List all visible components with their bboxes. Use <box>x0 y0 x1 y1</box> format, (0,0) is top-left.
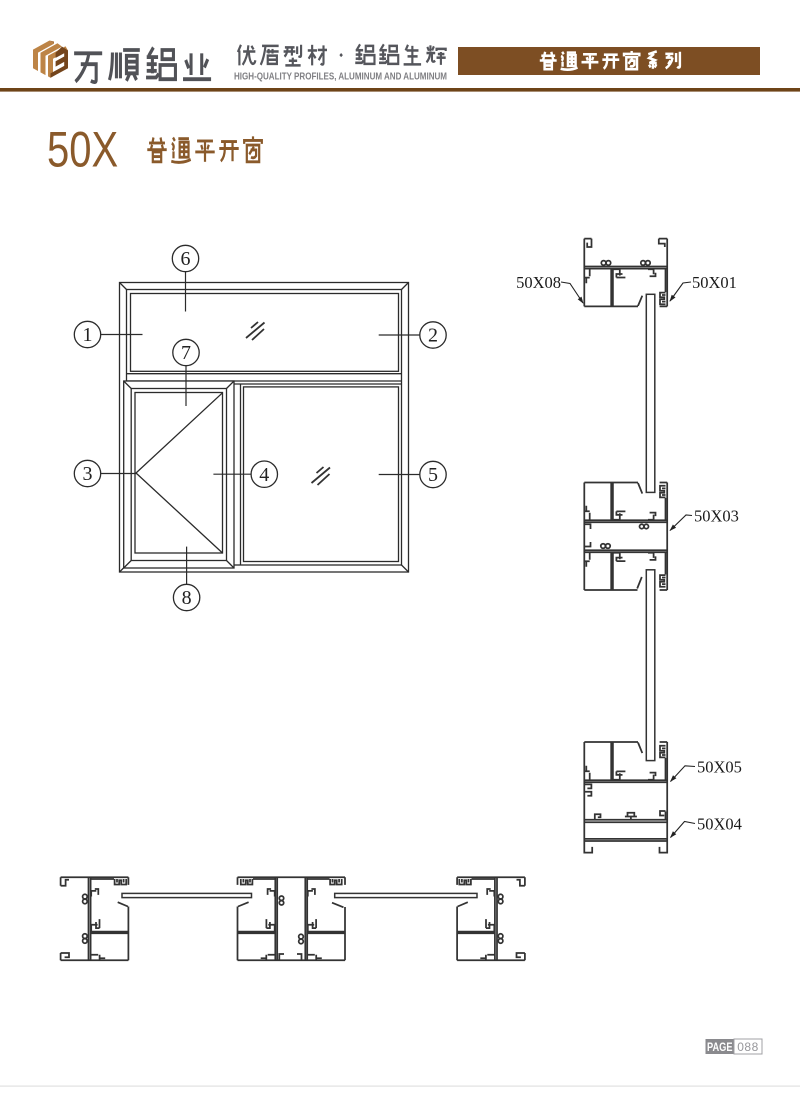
svg-text:50X: 50X <box>47 121 118 177</box>
svg-text:50X01: 50X01 <box>692 273 737 292</box>
svg-text:6: 6 <box>181 248 191 270</box>
svg-text:5: 5 <box>428 464 438 486</box>
svg-text:2: 2 <box>428 325 438 347</box>
svg-text:50X08: 50X08 <box>516 273 561 292</box>
svg-text:088: 088 <box>737 1040 759 1054</box>
svg-text:4: 4 <box>259 464 269 486</box>
svg-text:7: 7 <box>181 342 191 364</box>
svg-text:50X04: 50X04 <box>697 815 742 834</box>
svg-text:50X03: 50X03 <box>694 507 739 526</box>
svg-text:1: 1 <box>83 324 93 346</box>
svg-text:50X05: 50X05 <box>697 758 742 777</box>
svg-text:HIGH-QUALITY PROFILES, ALUMINU: HIGH-QUALITY PROFILES, ALUMINUM AND ALUM… <box>234 72 447 83</box>
svg-text:3: 3 <box>83 463 93 485</box>
svg-text:8: 8 <box>182 587 192 609</box>
svg-text:PAGE: PAGE <box>707 1042 733 1054</box>
